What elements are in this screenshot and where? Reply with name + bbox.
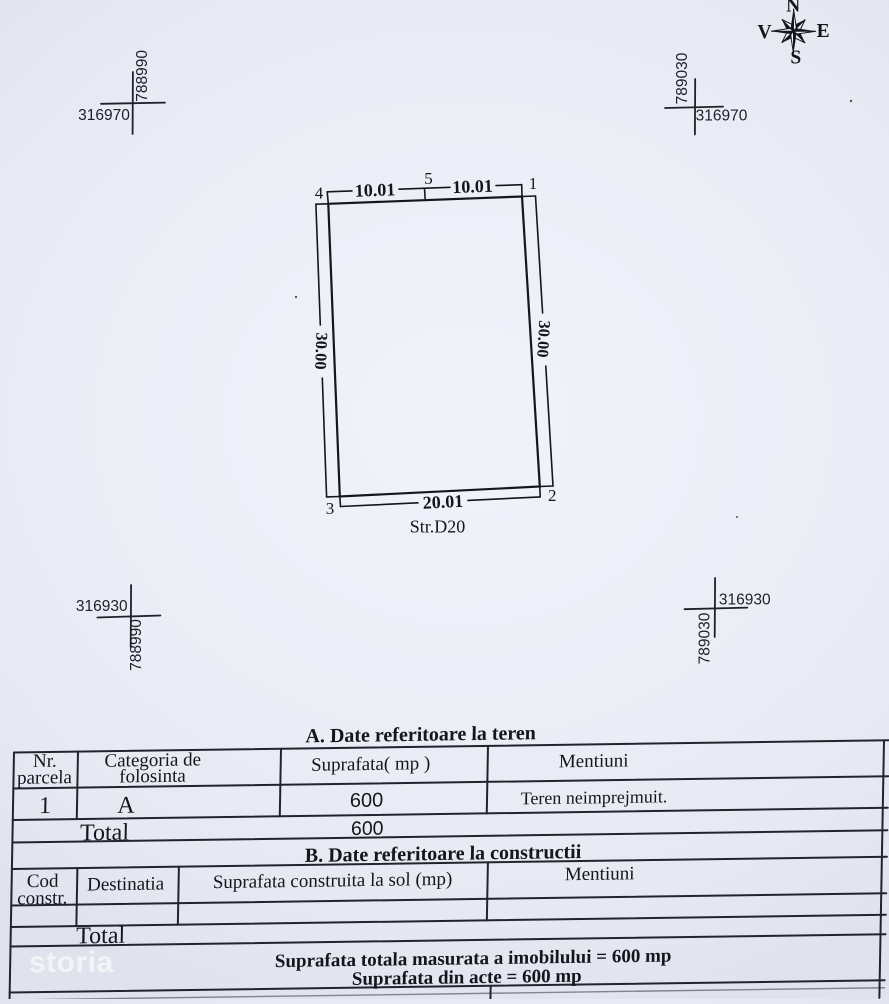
svg-text:316970: 316970 xyxy=(78,107,130,124)
svg-text:A: A xyxy=(117,793,135,819)
svg-text:A. Date referitoare la teren: A. Date referitoare la teren xyxy=(305,722,536,747)
svg-text:folosinta: folosinta xyxy=(119,766,186,788)
svg-text:Str.D20: Str.D20 xyxy=(410,517,466,537)
svg-text:1: 1 xyxy=(529,174,538,193)
svg-text:B. Date referitoare la constru: B. Date referitoare la constructii xyxy=(305,841,582,867)
svg-text:Total: Total xyxy=(80,820,130,847)
svg-text:316930: 316930 xyxy=(719,592,771,609)
svg-text:316970: 316970 xyxy=(696,108,748,125)
svg-text:parcela: parcela xyxy=(17,767,73,789)
svg-text:V: V xyxy=(758,22,772,43)
svg-text:Suprafata( mp ): Suprafata( mp ) xyxy=(311,753,431,776)
svg-text:788990: 788990 xyxy=(134,50,151,102)
svg-text:4: 4 xyxy=(315,184,324,203)
svg-text:1: 1 xyxy=(39,793,51,819)
svg-text:316930: 316930 xyxy=(76,598,128,615)
svg-text:2: 2 xyxy=(548,486,557,505)
svg-text:5: 5 xyxy=(424,169,433,188)
svg-text:Mentiuni: Mentiuni xyxy=(559,750,629,772)
svg-text:3: 3 xyxy=(326,499,335,518)
svg-text:Suprafata construita la sol (m: Suprafata construita la sol (mp) xyxy=(213,869,453,893)
svg-text:constr.: constr. xyxy=(17,888,68,910)
svg-text:N: N xyxy=(786,0,800,17)
svg-text:30.00: 30.00 xyxy=(311,332,331,370)
svg-text:20.01: 20.01 xyxy=(422,491,463,513)
svg-text:Suprafata din acte = 600 mp: Suprafata din acte = 600 mp xyxy=(352,966,582,990)
svg-text:788990: 788990 xyxy=(128,619,145,671)
svg-text:789030: 789030 xyxy=(674,52,691,104)
svg-text:Mentiuni: Mentiuni xyxy=(565,863,635,885)
svg-text:10.01: 10.01 xyxy=(354,179,395,200)
svg-text:E: E xyxy=(817,21,830,42)
svg-text:600: 600 xyxy=(350,790,384,812)
svg-text:600: 600 xyxy=(351,818,384,840)
svg-text:10.01: 10.01 xyxy=(452,176,493,197)
svg-text:30.00: 30.00 xyxy=(533,320,554,358)
svg-text:Destinatia: Destinatia xyxy=(87,873,165,895)
svg-text:S: S xyxy=(790,48,801,69)
svg-text:789030: 789030 xyxy=(696,612,713,664)
svg-text:Teren neimprejmuit.: Teren neimprejmuit. xyxy=(521,786,668,808)
